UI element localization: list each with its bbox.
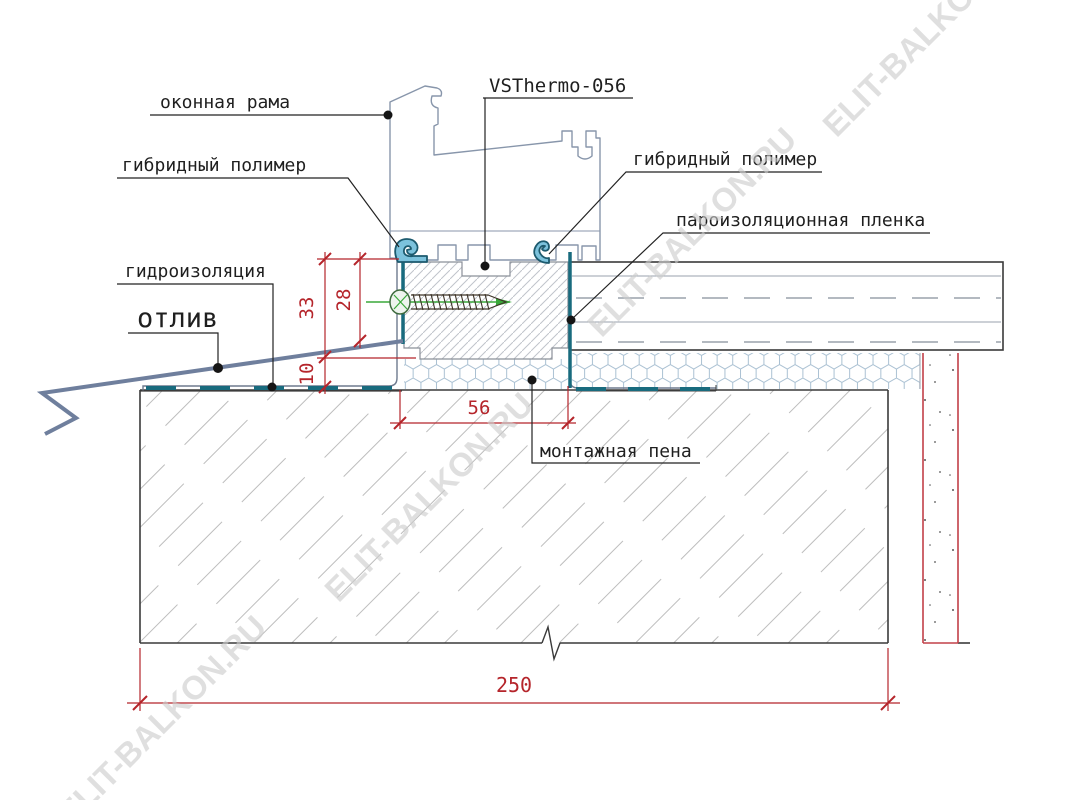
dim-28: 28 xyxy=(333,289,355,312)
label-drip-flashing: отлив xyxy=(137,303,218,334)
thermal-block xyxy=(404,262,568,359)
dim-250: 250 xyxy=(496,673,532,697)
label-window-frame: оконная рама xyxy=(160,92,290,113)
label-hybrid-polymer-left: гибридный полимер xyxy=(122,155,306,176)
label-mounting-foam: монтажная пена xyxy=(540,441,692,462)
dim-33: 33 xyxy=(296,297,318,320)
label-product-code: VSThermo-056 xyxy=(489,75,626,97)
plaster-strip xyxy=(923,353,958,643)
technical-drawing: 33 28 10 56 250 оконная рама гибридный п… xyxy=(0,0,1080,800)
dim-10: 10 xyxy=(296,363,318,386)
drawing-canvas: 33 28 10 56 250 оконная рама гибридный п… xyxy=(0,0,1080,800)
concrete-slab xyxy=(140,390,970,659)
watermark-top-right: ELIT-BALKON.RU xyxy=(815,0,1038,143)
label-waterproofing: гидроизоляция xyxy=(125,261,266,282)
